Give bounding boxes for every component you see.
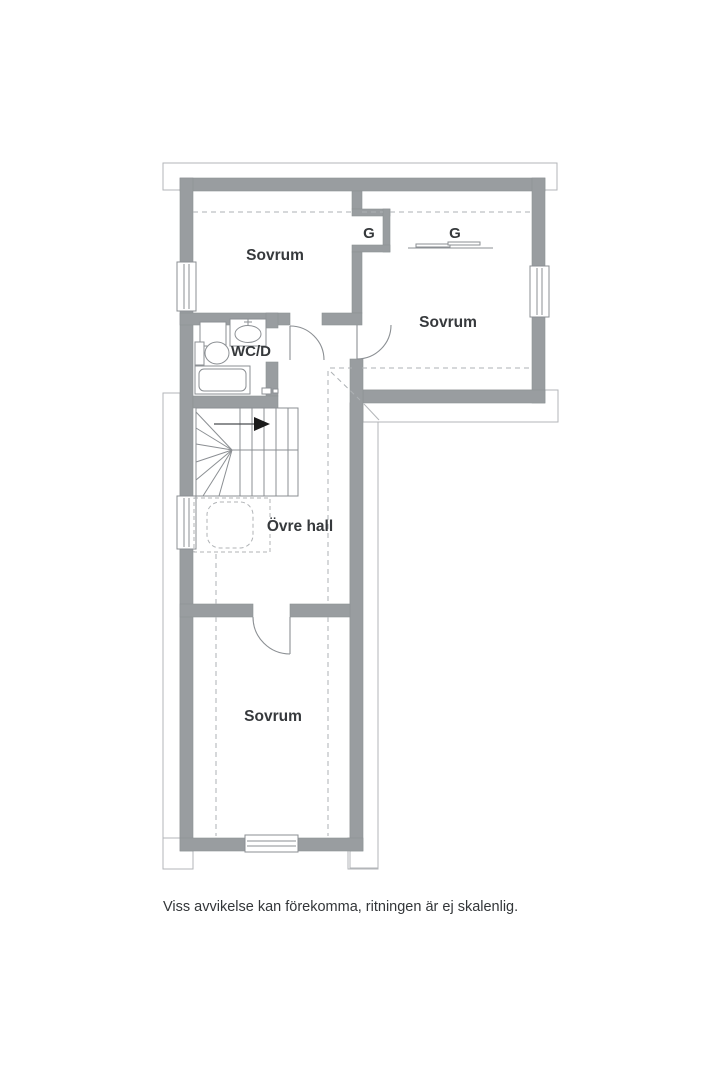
stair-opening-dashed <box>194 498 270 552</box>
window-left-upper <box>177 262 196 311</box>
floor-drain <box>262 388 278 394</box>
disclaimer-caption: Viss avvikelse kan förekomma, ritningen … <box>163 899 518 915</box>
exterior-wall-bottom <box>180 838 245 851</box>
exterior-wall-left <box>180 178 193 262</box>
window-bottom <box>245 835 298 852</box>
window-right <box>530 266 549 317</box>
door-hall-bedroom-upper-left <box>290 326 324 360</box>
exterior-wall-left <box>180 549 193 851</box>
bedroom-lower-top-wall <box>180 604 253 617</box>
partition-wall <box>352 191 362 209</box>
shower <box>195 366 250 394</box>
sink <box>230 319 266 346</box>
label-bedroom-lower: Sovrum <box>244 708 302 725</box>
floor-plan-page: Sovrum Sovrum Sovrum Övre hall WC/D G G … <box>0 0 720 1080</box>
walls <box>180 178 545 851</box>
bedroom-right-bottom-wall <box>363 390 545 403</box>
hall-top-wall <box>322 313 362 325</box>
door-bedroom-upper-right <box>357 325 391 359</box>
wc-bottom-wall <box>193 396 278 408</box>
label-wardrobe-right: G <box>449 225 461 242</box>
bedroom-lower-top-wall <box>290 604 350 617</box>
exterior-wall-left <box>180 311 193 496</box>
wardrobe-sliding-doors <box>408 242 493 248</box>
staircase <box>196 408 298 496</box>
label-upper-hall: Övre hall <box>267 518 333 535</box>
partition-wall <box>352 252 362 313</box>
closet-wall <box>352 245 390 252</box>
label-wc-shower: WC/D <box>231 343 271 360</box>
window-left-lower <box>177 496 196 549</box>
floor-plan-canvas: Sovrum Sovrum Sovrum Övre hall WC/D G G … <box>0 0 720 1080</box>
exterior-wall-lower-right <box>350 359 363 851</box>
label-bedroom-upper-right: Sovrum <box>419 314 477 331</box>
label-bedroom-upper-left: Sovrum <box>246 247 304 264</box>
label-wardrobe-left: G <box>363 225 375 242</box>
toilet <box>195 342 229 365</box>
exterior-wall-right <box>532 178 545 267</box>
door-bedroom-lower <box>253 617 290 654</box>
wc-wall <box>266 313 278 328</box>
exterior-wall-bottom <box>298 838 363 851</box>
exterior-wall-top <box>180 178 545 191</box>
